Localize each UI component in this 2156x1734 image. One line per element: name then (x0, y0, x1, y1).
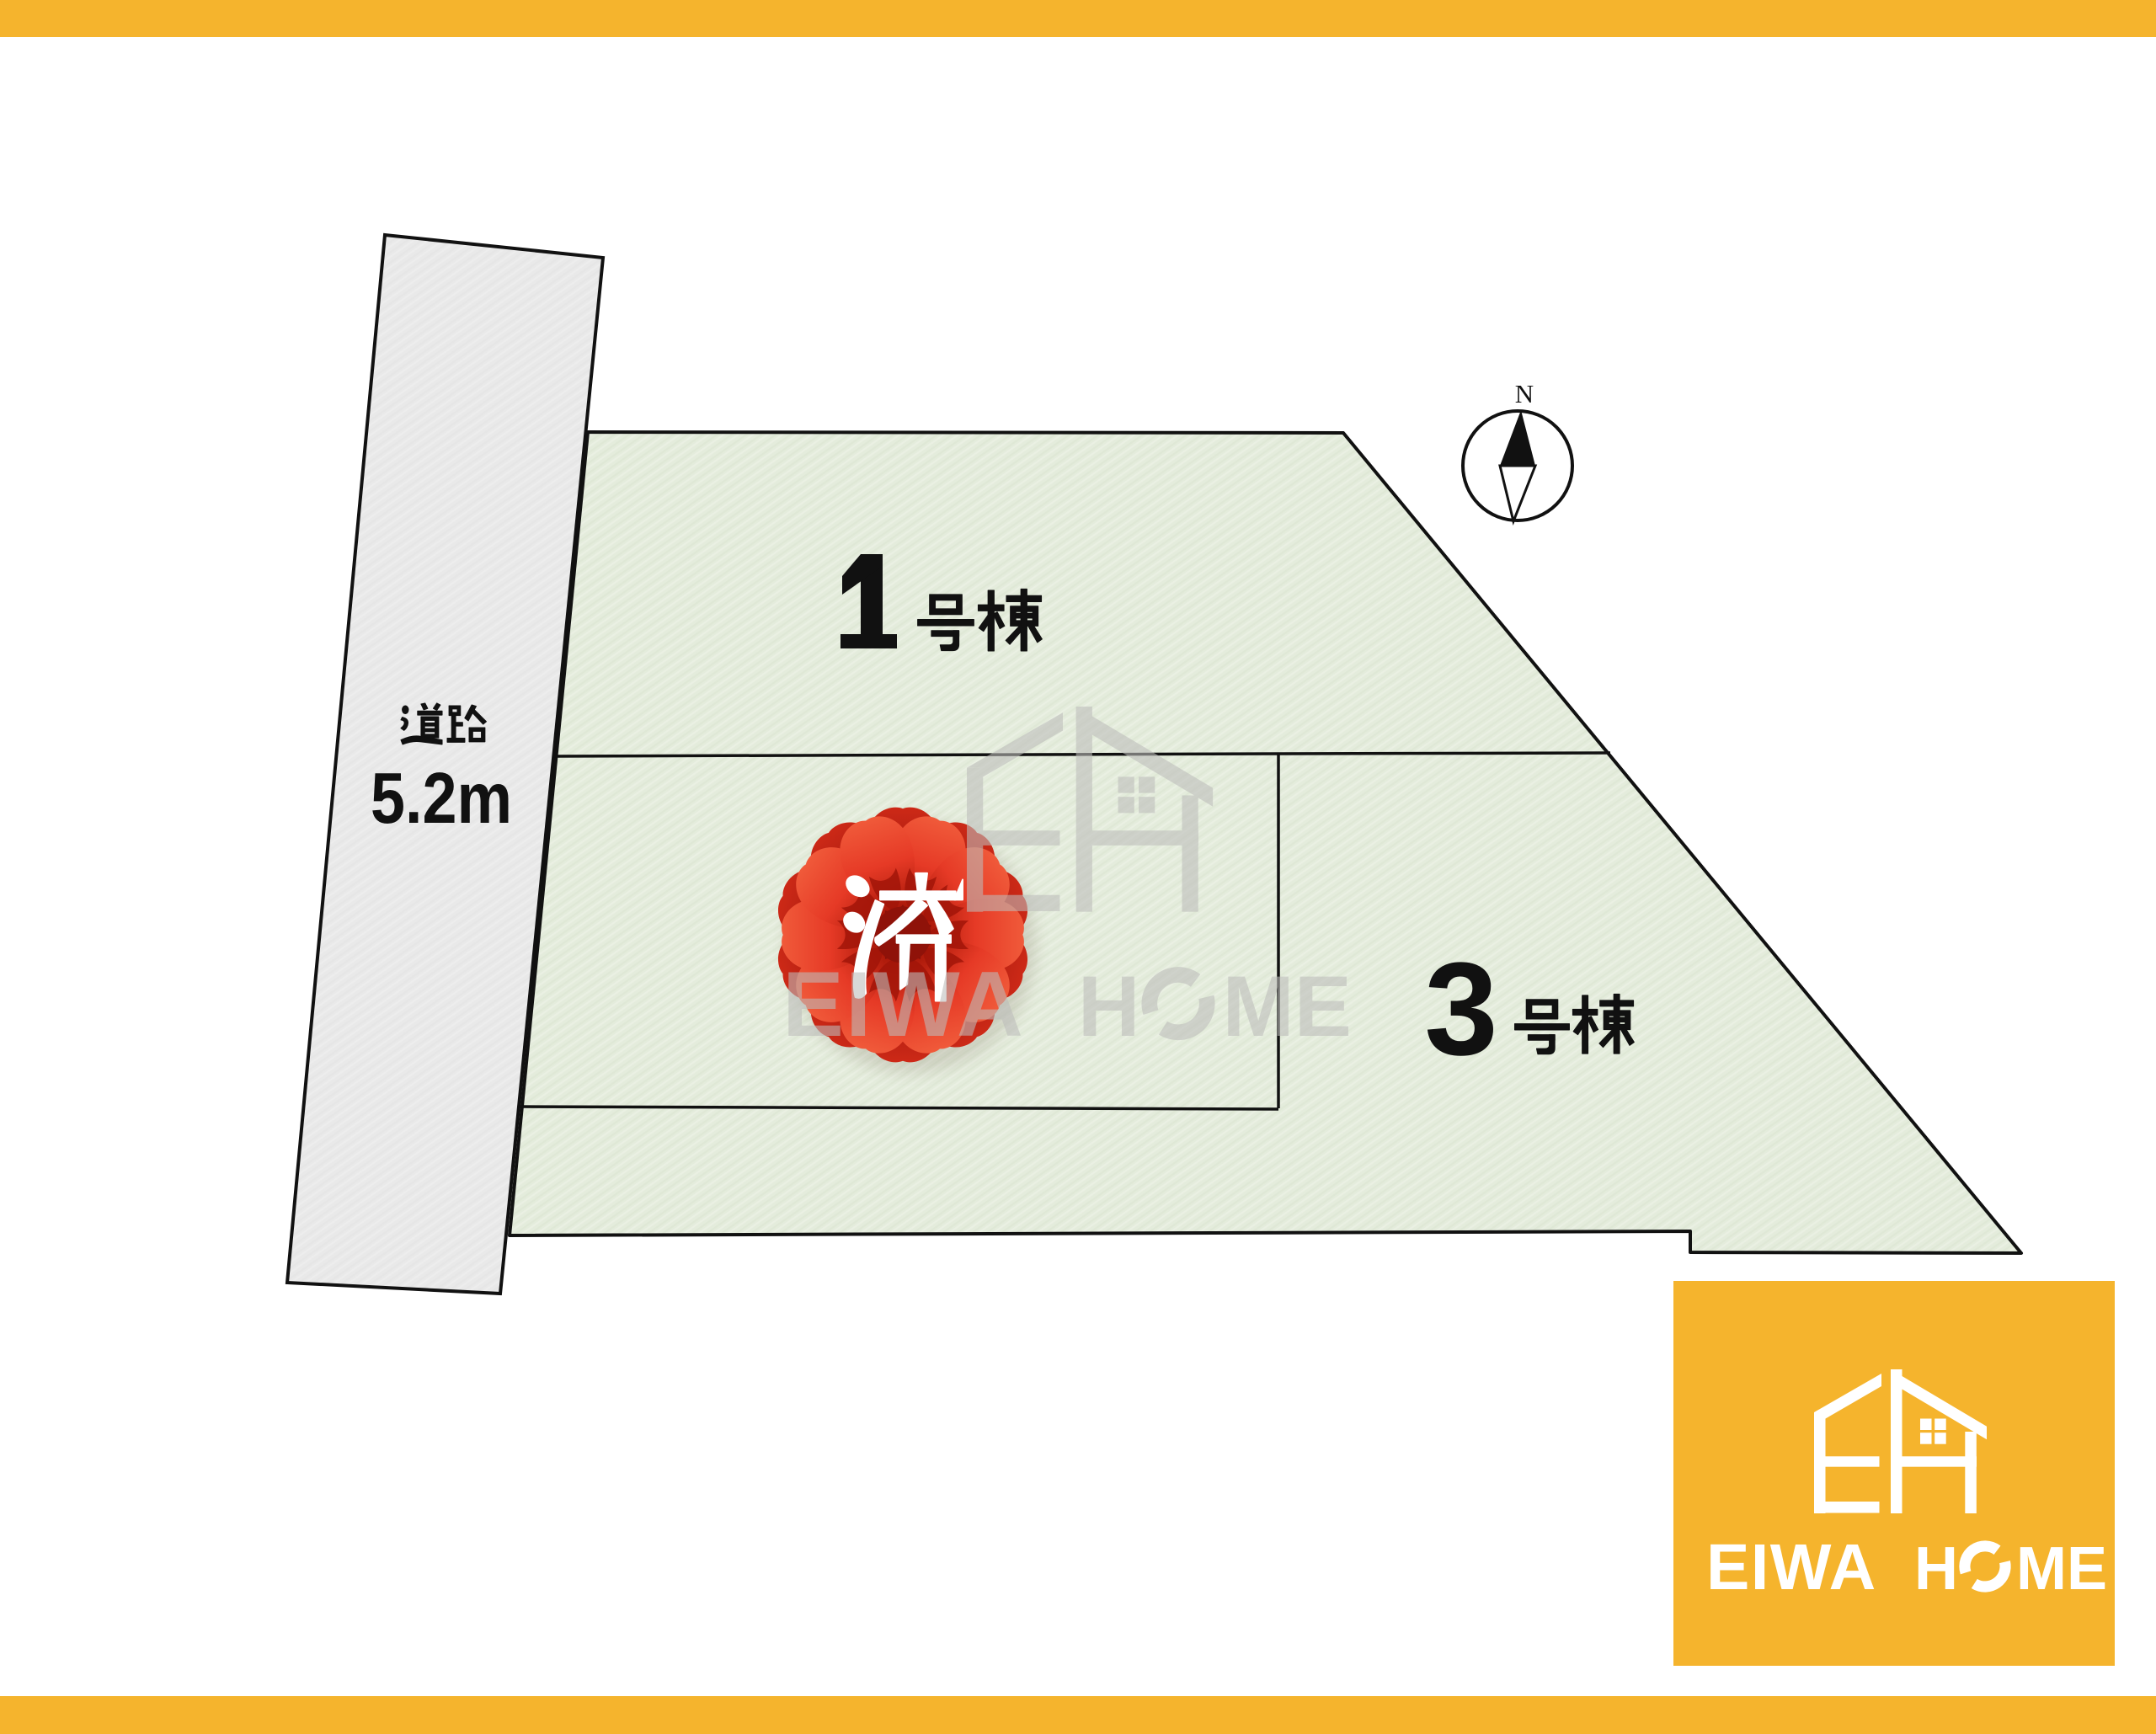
svg-text:5.2m: 5.2m (371, 759, 512, 839)
svg-text:3: 3 (1424, 936, 1497, 1083)
svg-text:N: N (1515, 379, 1534, 408)
